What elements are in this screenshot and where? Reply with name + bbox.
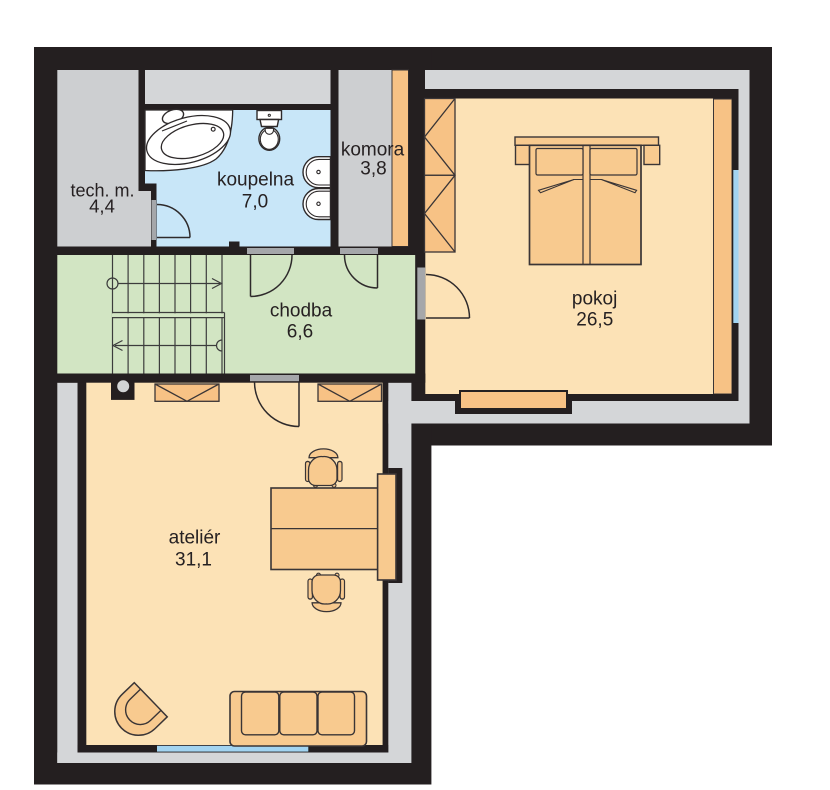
svg-text:7,0: 7,0 xyxy=(242,192,268,213)
svg-text:4,4: 4,4 xyxy=(89,196,115,217)
svg-text:3,8: 3,8 xyxy=(360,159,386,180)
svg-text:pokoj: pokoj xyxy=(572,289,617,310)
svg-text:chodba: chodba xyxy=(270,301,333,322)
svg-text:koupelna: koupelna xyxy=(217,170,295,191)
svg-text:26,5: 26,5 xyxy=(576,310,613,331)
svg-text:31,1: 31,1 xyxy=(175,550,212,571)
svg-text:6,6: 6,6 xyxy=(287,322,313,343)
svg-text:ateliér: ateliér xyxy=(169,528,221,549)
svg-text:komora: komora xyxy=(341,140,405,161)
